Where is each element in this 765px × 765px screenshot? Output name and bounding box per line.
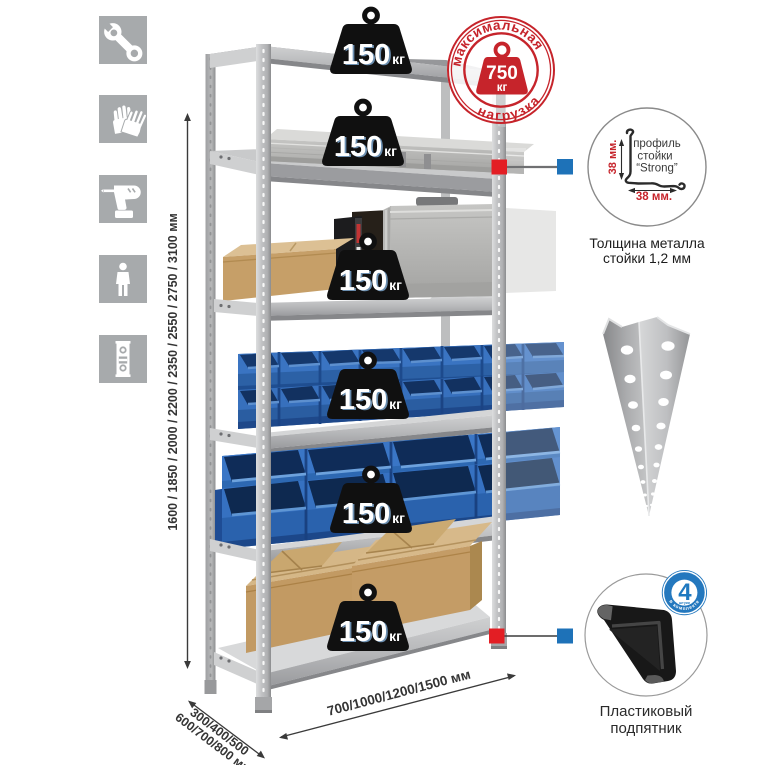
svg-text:Пластиковый: Пластиковый bbox=[600, 703, 693, 720]
svg-text:стойки: стойки bbox=[637, 151, 672, 163]
svg-text:штуки: штуки bbox=[679, 601, 690, 605]
svg-text:38 мм.: 38 мм. bbox=[636, 191, 672, 203]
svg-text:подпятник: подпятник bbox=[610, 720, 682, 737]
svg-text:“Strong”: “Strong” bbox=[636, 163, 678, 175]
svg-text:Толщина металла: Толщина металла bbox=[589, 236, 705, 251]
svg-text:кг: кг bbox=[497, 82, 508, 94]
svg-text:38 мм.: 38 мм. bbox=[607, 140, 619, 175]
svg-text:профиль: профиль bbox=[633, 138, 681, 150]
svg-text:1600 / 1850 / 2000 / 2200 / 23: 1600 / 1850 / 2000 / 2200 / 2350 / 2550 … bbox=[166, 213, 180, 530]
svg-text:стойки 1,2 мм: стойки 1,2 мм bbox=[603, 251, 691, 266]
svg-text:750: 750 bbox=[486, 63, 518, 84]
